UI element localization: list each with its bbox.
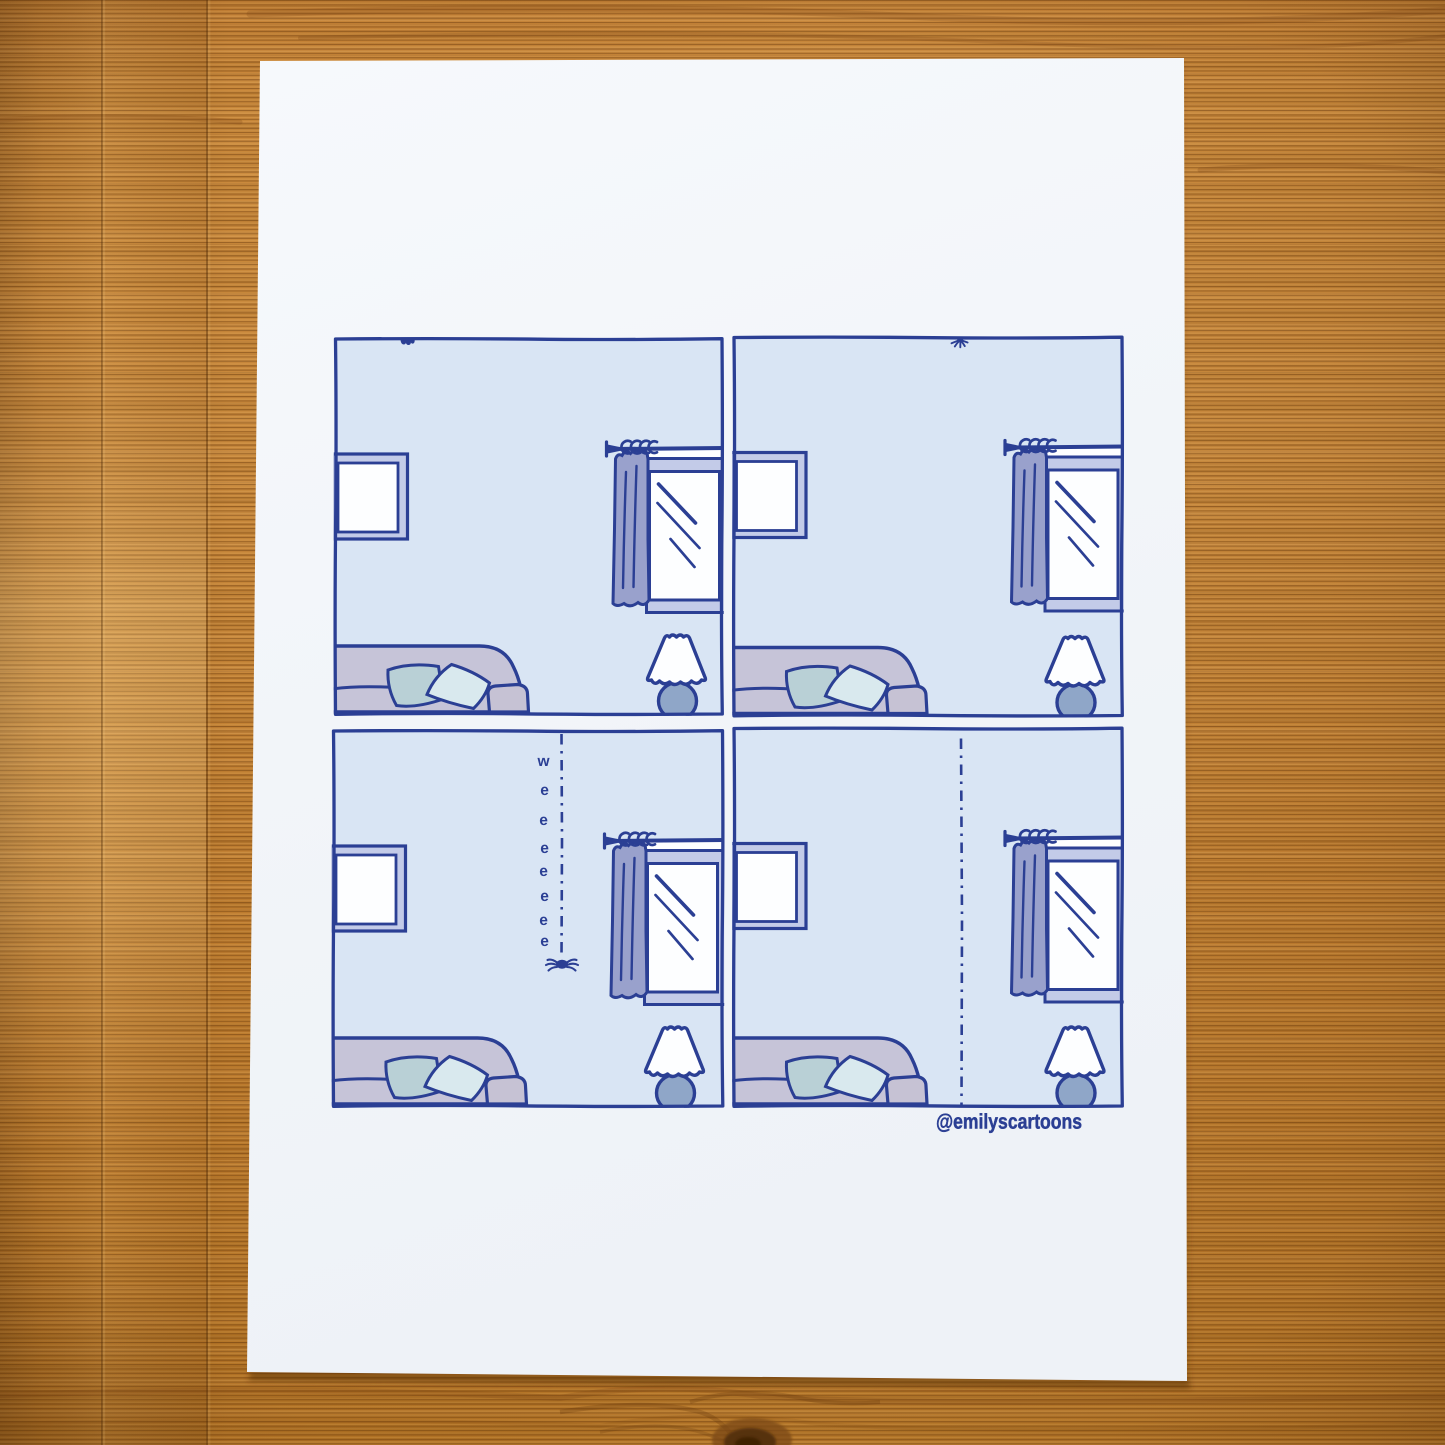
svg-text:e: e — [539, 812, 548, 829]
svg-text:w: w — [536, 753, 550, 770]
svg-text:e: e — [539, 912, 548, 929]
svg-text:e: e — [540, 933, 549, 950]
svg-text:e: e — [540, 840, 549, 857]
svg-text:e: e — [540, 782, 549, 799]
svg-text:e: e — [539, 863, 548, 880]
svg-text:e: e — [540, 888, 549, 905]
svg-text:@emilyscartoons: @emilyscartoons — [936, 1111, 1082, 1134]
